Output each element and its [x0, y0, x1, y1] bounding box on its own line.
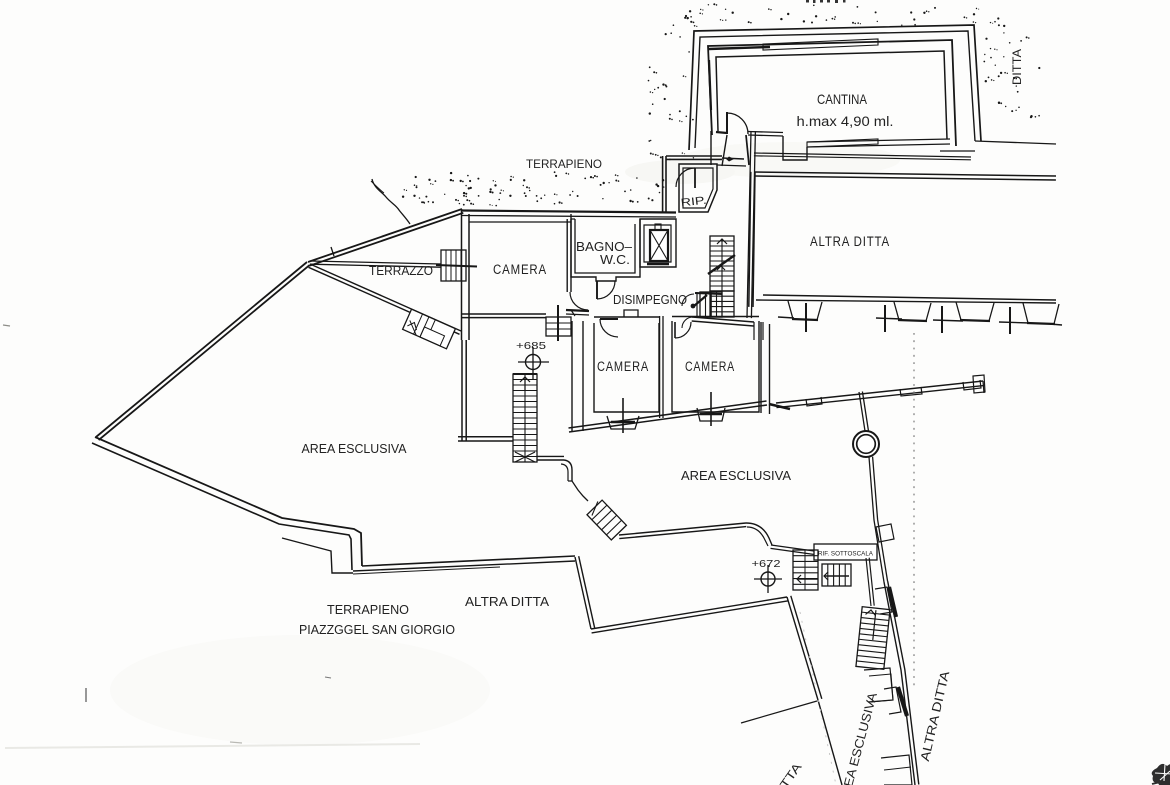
svg-text:+672: +672 — [752, 558, 781, 570]
svg-text:RIF. SOTTOSCALA: RIF. SOTTOSCALA — [818, 551, 874, 558]
svg-text:AREA ESCLUSIVA: AREA ESCLUSIVA — [681, 468, 791, 483]
svg-text:TERRAPIENO: TERRAPIENO — [526, 157, 602, 171]
svg-text:h.max 4,90 ml.: h.max 4,90 ml. — [797, 114, 894, 129]
svg-text:TERRAPIENO: TERRAPIENO — [327, 603, 409, 617]
svg-text:CANTINA: CANTINA — [817, 91, 868, 107]
svg-text:ALTRA DITTA: ALTRA DITTA — [465, 595, 550, 609]
svg-text:CAMERA: CAMERA — [685, 359, 735, 374]
svg-text:CAMERA: CAMERA — [493, 262, 547, 277]
svg-text:W.C.: W.C. — [600, 253, 630, 267]
svg-text:+685: +685 — [516, 340, 546, 352]
svg-text:TERRAZZO: TERRAZZO — [369, 263, 433, 278]
svg-text:CAMERA: CAMERA — [597, 359, 649, 374]
svg-text:BAGNO–: BAGNO– — [576, 240, 632, 254]
svg-text:PIAZZGGEL SAN GIORGIO: PIAZZGGEL SAN GIORGIO — [299, 623, 455, 637]
svg-text:DISIMPEGNO: DISIMPEGNO — [613, 293, 687, 307]
svg-text:DITTA: DITTA — [1010, 49, 1024, 85]
svg-text:AREA ESCLUSIVA: AREA ESCLUSIVA — [302, 441, 407, 456]
svg-text:ALTRA DITTA: ALTRA DITTA — [810, 233, 890, 249]
